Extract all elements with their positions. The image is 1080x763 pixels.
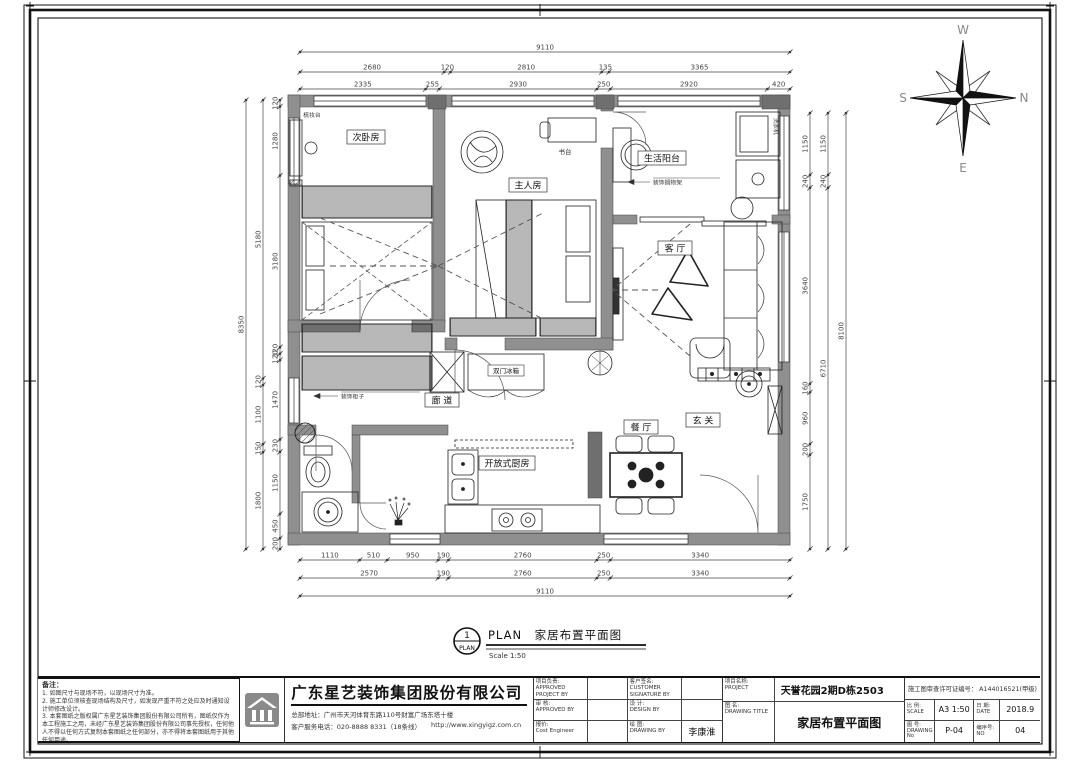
svg-text:廊 道: 廊 道	[432, 395, 453, 407]
dining-furniture	[610, 436, 682, 514]
dimension-chain: 9110	[297, 588, 792, 599]
shower-head	[389, 497, 410, 525]
signature-area[interactable]	[682, 678, 722, 699]
dimension-value: 250	[597, 570, 610, 578]
dimension-value: 1800	[255, 492, 263, 510]
dimension-value: 510	[367, 552, 380, 560]
room-labels: 次卧房 主人房 生活阳台 客 厅 玄 关 餐 厅 廊 道 开放式厨房	[303, 111, 780, 470]
title-block: 备注： 1. 如图尺寸与现场不符，以现场尺寸为准。 2. 施工单位须核查现场结构…	[38, 676, 1040, 743]
label-living-room: 客 厅	[658, 241, 692, 255]
note-line: 1. 如图尺寸与现场不符，以现场尺寸为准。	[42, 690, 235, 698]
sliding-door	[640, 217, 704, 222]
label-desk: 书台	[559, 147, 572, 156]
compass-n: N	[1020, 91, 1029, 105]
svg-text:生活阳台: 生活阳台	[644, 153, 680, 165]
note-line: 3. 本套图纸之版权属广东星艺装饰集团股份有限公司所有，图纸仅作为本工程施工之用…	[42, 713, 235, 742]
drawn-by-name: 李康淮	[682, 721, 722, 742]
stove	[492, 509, 542, 531]
dimension-value: 240	[802, 175, 810, 188]
label-foyer: 玄 关	[686, 413, 720, 427]
dimension-chain: 111051095019027602503340	[297, 552, 792, 563]
dimension-value: 2570	[360, 570, 378, 578]
dimension-value: 160	[802, 381, 810, 394]
label-dining-room: 餐 厅	[624, 420, 658, 434]
dimension-value: 200	[802, 443, 810, 456]
signature-grid: 项目负责:APPROVED PROJECT BY 客户签名:CUSTOMER S…	[534, 678, 723, 742]
dimension-chain: 268012028101353365	[297, 64, 792, 75]
dimension-chain: 115024036401609602001750	[802, 110, 813, 551]
dimension-value: 450	[272, 519, 280, 532]
svg-text:主人房: 主人房	[514, 180, 541, 192]
label-dressing-table: 梳妆台	[303, 111, 321, 119]
cell-quote: 报价:Cost Engineer	[534, 721, 628, 742]
dimension-value: 3340	[691, 570, 709, 578]
counter-edge	[455, 440, 573, 448]
dimension-value: 1150	[820, 135, 828, 153]
drawing-no-value: P-04	[935, 721, 975, 742]
cell-drawn-by: 绘 图:DRAWING BY 李康淮	[628, 721, 722, 742]
label-corridor: 廊 道	[425, 393, 459, 407]
label-open-kitchen: 开放式厨房	[479, 456, 535, 470]
toilet	[306, 457, 330, 487]
bed	[476, 200, 596, 318]
cell-design: 设 计:DESIGN BY	[628, 700, 722, 721]
dimension-value: 190	[437, 570, 450, 578]
sofa	[724, 222, 782, 370]
label-secondary-bedroom: 次卧房	[347, 130, 385, 144]
dimension-value: 950	[406, 552, 419, 560]
annotation-shelf: 装饰搁物架	[653, 179, 682, 187]
dimension-chain: 9110	[297, 44, 792, 55]
dimension-value: 9110	[536, 44, 554, 52]
house-logo-icon	[244, 692, 280, 728]
svg-text:客 厅: 客 厅	[665, 243, 686, 255]
dimension-value: 240	[820, 175, 828, 188]
cell-project-lead: 项目负责:APPROVED PROJECT BY	[534, 678, 628, 700]
side-table	[731, 197, 753, 219]
compass-w: W	[957, 23, 969, 37]
label-washer: 洗衣机	[772, 118, 780, 135]
dimension-value: 9110	[536, 588, 554, 596]
dimension-value: 2920	[680, 81, 698, 89]
corridor-cabinet	[302, 324, 432, 352]
desk	[548, 118, 596, 142]
kitchen-sink	[448, 450, 478, 504]
dimension-value: 230	[272, 439, 280, 452]
signature-area[interactable]	[682, 700, 722, 720]
dimension-value: 2810	[517, 64, 535, 72]
floor-plan-canvas: W N S E	[0, 0, 1080, 763]
dimension-chain: 11502406710	[820, 110, 831, 551]
balcony-furniture	[613, 112, 780, 226]
dimension-chain: 8350	[238, 97, 249, 551]
dimension-value: 2335	[354, 81, 372, 89]
compass-s: S	[899, 91, 907, 105]
dimension-value: 2760	[514, 570, 532, 578]
dimension-value: 420	[772, 81, 785, 89]
signature-area[interactable]	[588, 700, 627, 720]
dimension-value: 1280	[272, 132, 280, 150]
plan-scale: Scale 1:50	[489, 652, 526, 660]
coffee-table	[670, 250, 708, 286]
signature-area[interactable]	[588, 721, 627, 742]
cell-customer-signature: 客户签名:CUSTOMER SIGNATURE BY	[628, 678, 722, 700]
dimension-value: 6710	[820, 359, 828, 377]
dimension-value: 3640	[802, 277, 810, 295]
dimension-value: 3340	[691, 552, 709, 560]
dimension-value: 250	[597, 552, 610, 560]
dimension-value: 2680	[363, 64, 381, 72]
compass-rose: W N S E	[899, 23, 1028, 175]
company-address: 总部地址：广州市天河体育东路110号财富广场东塔十楼	[291, 709, 526, 719]
svg-text:餐 厅: 餐 厅	[631, 422, 652, 434]
signature-area[interactable]	[588, 678, 627, 699]
dimension-chain: 8100	[838, 110, 849, 551]
secondary-bedroom-furniture	[290, 120, 432, 390]
cell-review: 审 核:APPROVED BY	[534, 700, 628, 721]
svg-text:次卧房: 次卧房	[352, 132, 379, 144]
wardrobe	[302, 186, 432, 218]
dimension-value: 1470	[272, 391, 280, 409]
serial-value: 04	[1000, 721, 1040, 742]
company-url: http://www.xingyigz.com.cn	[431, 721, 521, 731]
toilet-tank	[304, 446, 332, 455]
dimension-value: 150	[255, 441, 263, 454]
permit-number: 施工图审查许可证编号： A144016521(甲级)	[905, 678, 1040, 700]
plan-title: 1 PLAN PLAN 家居布置平面图 Scale 1:50	[454, 628, 646, 660]
drawing-title: 家居布置平面图	[775, 702, 904, 742]
living-room-furniture	[588, 197, 782, 434]
label-fridge: 双门冰箱	[488, 365, 524, 376]
drawing-meta-block: 施工图审查许可证编号： A144016521(甲级) 比 例:SCALE A3 …	[905, 678, 1040, 742]
company-info: 广东星艺装饰集团股份有限公司 总部地址：广州市天河体育东路110号财富广场东塔十…	[285, 678, 533, 742]
dimension-value: 250	[597, 81, 610, 89]
dimension-value: 190	[437, 552, 450, 560]
project-name: 天誉花园2期D栋2503	[775, 678, 904, 701]
date-value: 2018.9	[1000, 700, 1040, 721]
dimension-value: 200	[272, 537, 280, 550]
notes-title: 备注：	[42, 681, 63, 689]
dimension-value: 135	[599, 64, 612, 72]
label-living-balcony: 生活阳台	[638, 151, 686, 165]
dimension-chain: 257019027602503340	[297, 570, 792, 581]
dimension-value: 8350	[238, 316, 246, 334]
dimension-value: 255	[426, 81, 439, 89]
scale-value: A3 1:50	[935, 700, 975, 721]
notes-block: 备注： 1. 如图尺寸与现场不符，以现场尺寸为准。 2. 施工单位须核查现场结构…	[38, 678, 240, 742]
doors	[316, 112, 758, 533]
dimension-value: 1110	[321, 552, 339, 560]
dimension-value: 1150	[802, 135, 810, 153]
company-phone: 客户服务电话：020-8888 8331（18条线）	[291, 721, 421, 731]
plan-tag: PLAN	[459, 645, 475, 652]
dimension-value: 1750	[802, 493, 810, 511]
svg-text:双门冰箱: 双门冰箱	[493, 366, 520, 375]
annotation-cabinet: 装饰柜子	[341, 393, 364, 401]
company-logo	[240, 678, 285, 742]
dimension-value: 3365	[691, 64, 709, 72]
compass-e: E	[959, 161, 967, 175]
dimension-chain: 1201280318012012014702301150450200	[272, 97, 283, 552]
company-name: 广东星艺装饰集团股份有限公司	[291, 681, 526, 706]
dimension-value: 2760	[514, 552, 532, 560]
plan-title-text: PLAN 家居布置平面图	[488, 628, 622, 642]
dimension-value: 8100	[838, 322, 846, 340]
dimension-value: 3180	[272, 252, 280, 270]
plan-number: 1	[464, 631, 470, 641]
master-bedroom-furniture	[450, 118, 596, 336]
dimension-value: 5180	[255, 230, 263, 248]
project-block: 项目名称:PROJECT 天誉花园2期D栋2503 图 名:DRAWING TI…	[723, 678, 905, 742]
dimension-value: 960	[802, 412, 810, 425]
note-line: 2. 施工单位须核查现场结构及尺寸，如发现严重不符之处应及时通知设计师修改设计。	[42, 698, 235, 714]
label-master-bedroom: 主人房	[509, 178, 547, 192]
drawing-sheet: W N S E	[0, 0, 1080, 763]
kitchen-furniture	[430, 352, 600, 533]
dimension-value: 1100	[255, 406, 263, 424]
dimension-chain: 518012011001501800	[255, 97, 266, 551]
dimension-chain: 233525529302502920420	[297, 81, 792, 92]
svg-text:玄 关: 玄 关	[693, 415, 714, 427]
dimension-value: 2930	[509, 81, 527, 89]
dimension-value: 1150	[272, 474, 280, 492]
svg-text:开放式厨房: 开放式厨房	[484, 458, 529, 470]
